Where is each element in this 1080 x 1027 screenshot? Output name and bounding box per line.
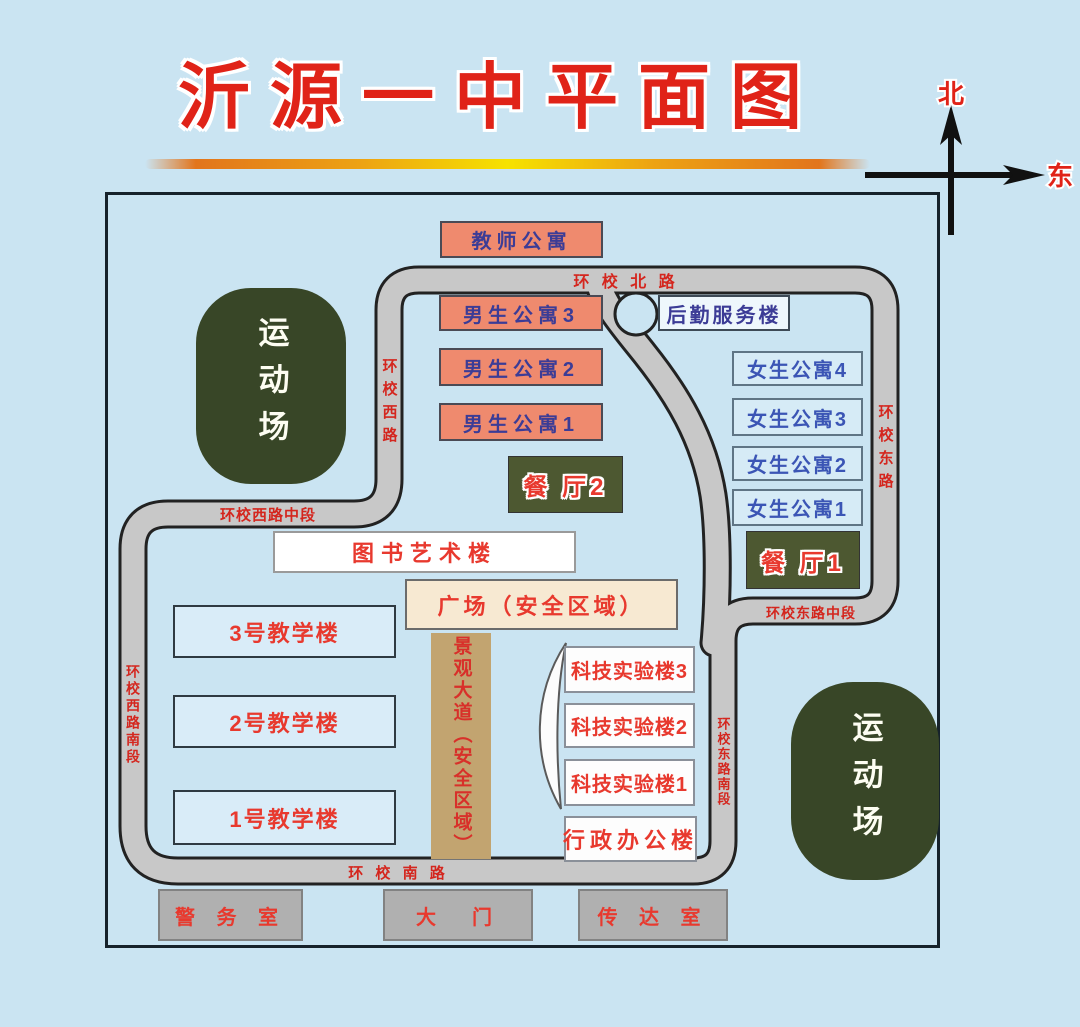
sports-field-west: 运动场 [196,288,346,484]
building-logistics-service: 后勤服务楼 [658,295,790,331]
plaza-safe-area: 广场（安全区域） [405,579,678,630]
road-label-west-ring-south: 环校西路南段 [123,640,143,790]
title-underline [145,159,870,169]
crescent-arc [540,643,566,809]
landscape-avenue-safe-area: 景观大道（安全区域） [431,633,491,859]
building-girls-dorm-3: 女生公寓3 [732,398,863,436]
road-label-west-ring: 环校西路 [379,343,399,465]
building-girls-dorm-1: 女生公寓1 [732,489,863,526]
building-library-art: 图书艺术楼 [273,531,576,573]
building-reception: 传 达 室 [578,889,728,941]
building-dining-hall-1: 餐 厅1 [746,531,860,589]
road-label-east-ring-south: 环校东路南段 [713,698,733,826]
building-teaching-3: 3号教学楼 [173,605,396,658]
road-label-west-ring-middle: 环校西路中段 [198,503,338,525]
road-label-east-ring-middle: 环校东路中段 [746,603,876,623]
main-gate: 大 门 [383,889,533,941]
sports-field-east: 运动场 [791,682,939,880]
building-admin-office: 行政办公楼 [564,816,697,862]
compass-north-arrow-icon [940,105,962,235]
road-label-south-ring: 环 校 南 路 [326,861,471,883]
building-science-lab-2: 科技实验楼2 [564,703,695,748]
compass-north-label: 北 [938,79,964,109]
building-science-lab-3: 科技实验楼3 [564,646,695,693]
compass-east-label: 东 [1047,161,1073,191]
building-boys-dorm-2: 男生公寓2 [439,348,603,386]
building-science-lab-1: 科技实验楼1 [564,759,695,806]
building-police-room: 警 务 室 [158,889,303,941]
compass-east-arrow-icon [865,165,1045,185]
building-teaching-1: 1号教学楼 [173,790,396,845]
building-girls-dorm-4: 女生公寓4 [732,351,863,386]
building-dining-hall-2: 餐 厅2 [508,456,623,513]
road-label-east-ring: 环校东路 [875,389,895,511]
building-boys-dorm-3: 男生公寓3 [439,295,603,331]
building-girls-dorm-2: 女生公寓2 [732,446,863,481]
roundabout-circle [615,293,657,335]
campus-map: 运动场 运动场 教师公寓 男生公寓3 男生公寓2 男生公寓1 后勤服务楼 女生公… [105,192,940,948]
building-boys-dorm-1: 男生公寓1 [439,403,603,441]
building-teacher-apartment: 教师公寓 [440,221,603,258]
building-teaching-2: 2号教学楼 [173,695,396,748]
road-label-north-ring: 环 校 北 路 [536,269,716,291]
page-title: 沂源一中平面图 [105,40,895,140]
